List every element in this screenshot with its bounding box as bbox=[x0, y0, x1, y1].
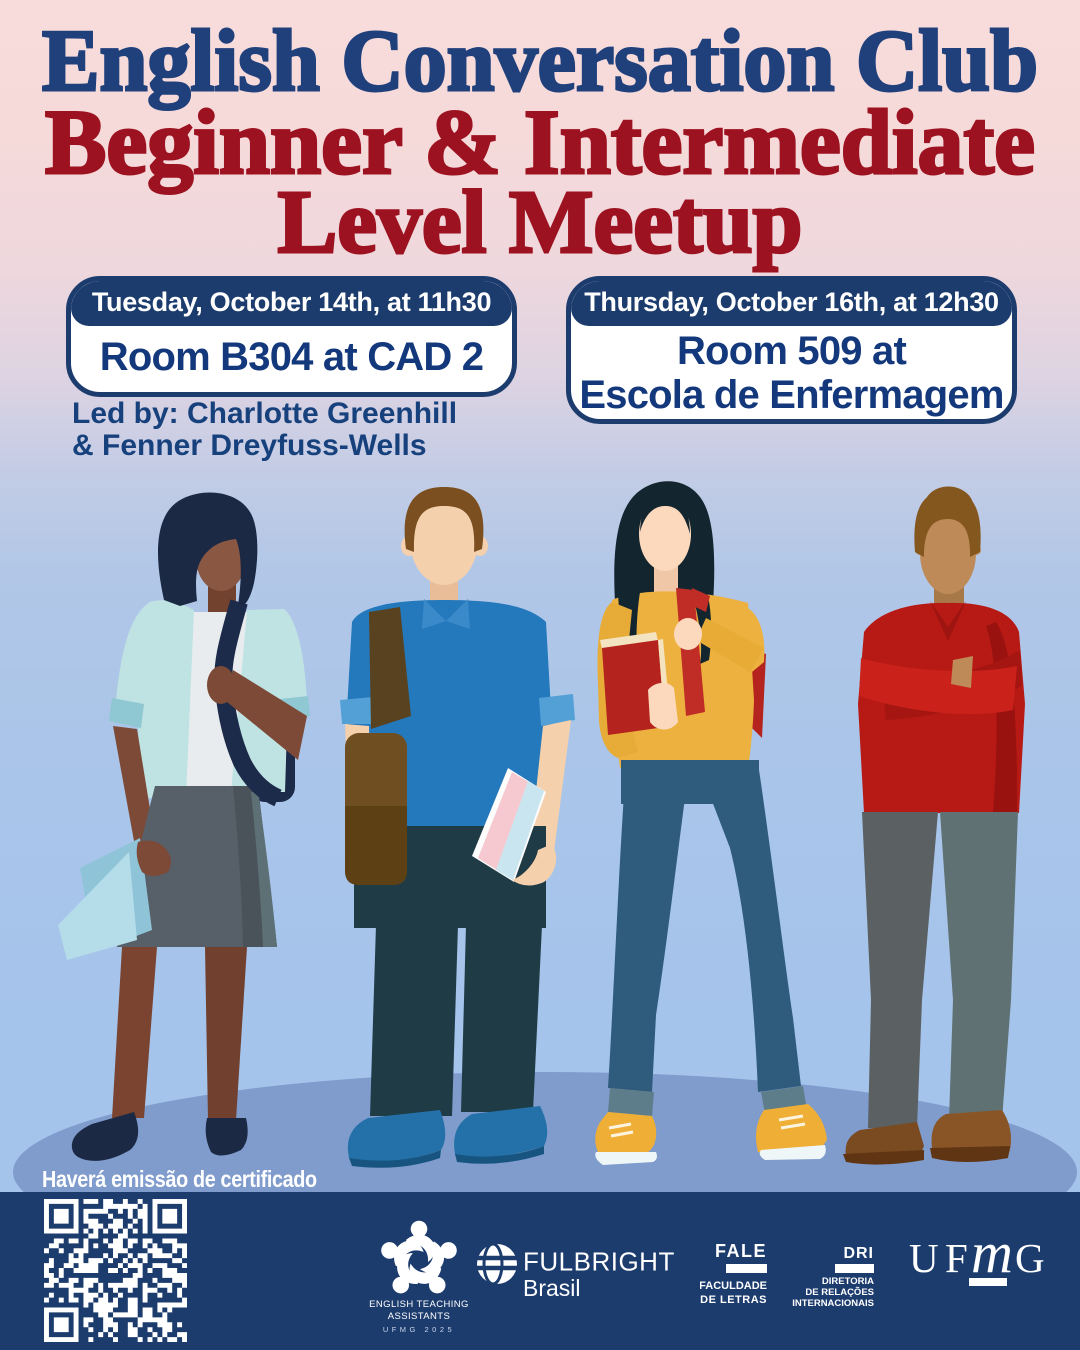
svg-text:FULBRIGHT: FULBRIGHT bbox=[523, 1247, 675, 1277]
svg-text:m: m bbox=[971, 1236, 1013, 1285]
svg-text:Brasil: Brasil bbox=[523, 1275, 581, 1301]
svg-text:UFMG 2025: UFMG 2025 bbox=[383, 1325, 455, 1334]
svg-text:DRI: DRI bbox=[843, 1245, 874, 1262]
svg-text:FALE: FALE bbox=[715, 1241, 767, 1261]
svg-text:INTERNACIONAIS: INTERNACIONAIS bbox=[792, 1298, 874, 1309]
svg-text:U: U bbox=[909, 1236, 939, 1281]
svg-text:ENGLISH TEACHING: ENGLISH TEACHING bbox=[369, 1299, 469, 1310]
svg-text:ASSISTANTS: ASSISTANTS bbox=[388, 1311, 450, 1322]
svg-text:DE LETRAS: DE LETRAS bbox=[700, 1294, 767, 1306]
svg-text:DIRETORIA: DIRETORIA bbox=[822, 1276, 874, 1287]
svg-text:FACULDADE: FACULDADE bbox=[700, 1280, 767, 1292]
svg-text:DE RELAÇÕES: DE RELAÇÕES bbox=[805, 1287, 874, 1298]
svg-text:F: F bbox=[945, 1236, 968, 1281]
svg-text:G: G bbox=[1015, 1236, 1045, 1281]
